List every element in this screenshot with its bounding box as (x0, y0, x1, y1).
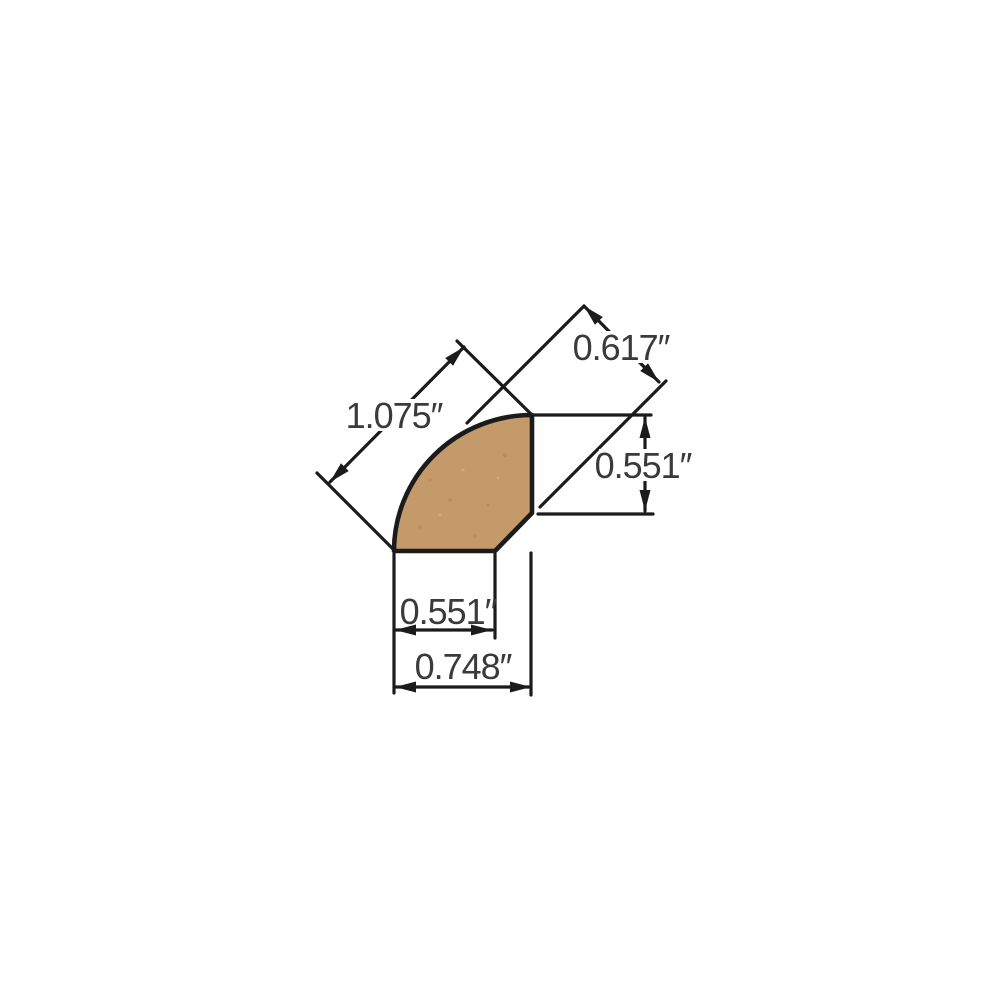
extension-line (317, 473, 394, 550)
diagram-canvas: 1.075″ 0.617″ 0.551″ (0, 0, 1000, 1000)
dimension-label: 0.551″ (400, 591, 498, 632)
dimension-label: 0.551″ (595, 445, 693, 486)
dimension-label: 0.617″ (573, 327, 671, 368)
dimension-bottom-face-width: 0.551″ (395, 591, 498, 636)
arrowhead-icon (395, 682, 416, 693)
extension-line (467, 306, 584, 423)
arrowhead-icon (510, 682, 531, 693)
arrowhead-icon (640, 490, 651, 511)
diagram-page: 1.075″ 0.617″ 0.551″ (0, 0, 1000, 1000)
dimension-label: 0.748″ (415, 646, 513, 687)
extension-line (457, 341, 531, 414)
dimension-label: 1.075″ (346, 395, 444, 436)
arrowhead-icon (640, 417, 651, 438)
extension-line (540, 381, 666, 507)
dimension-overall-width: 0.748″ (395, 646, 531, 693)
dimension-right-face-height: 0.551″ (532, 415, 693, 514)
